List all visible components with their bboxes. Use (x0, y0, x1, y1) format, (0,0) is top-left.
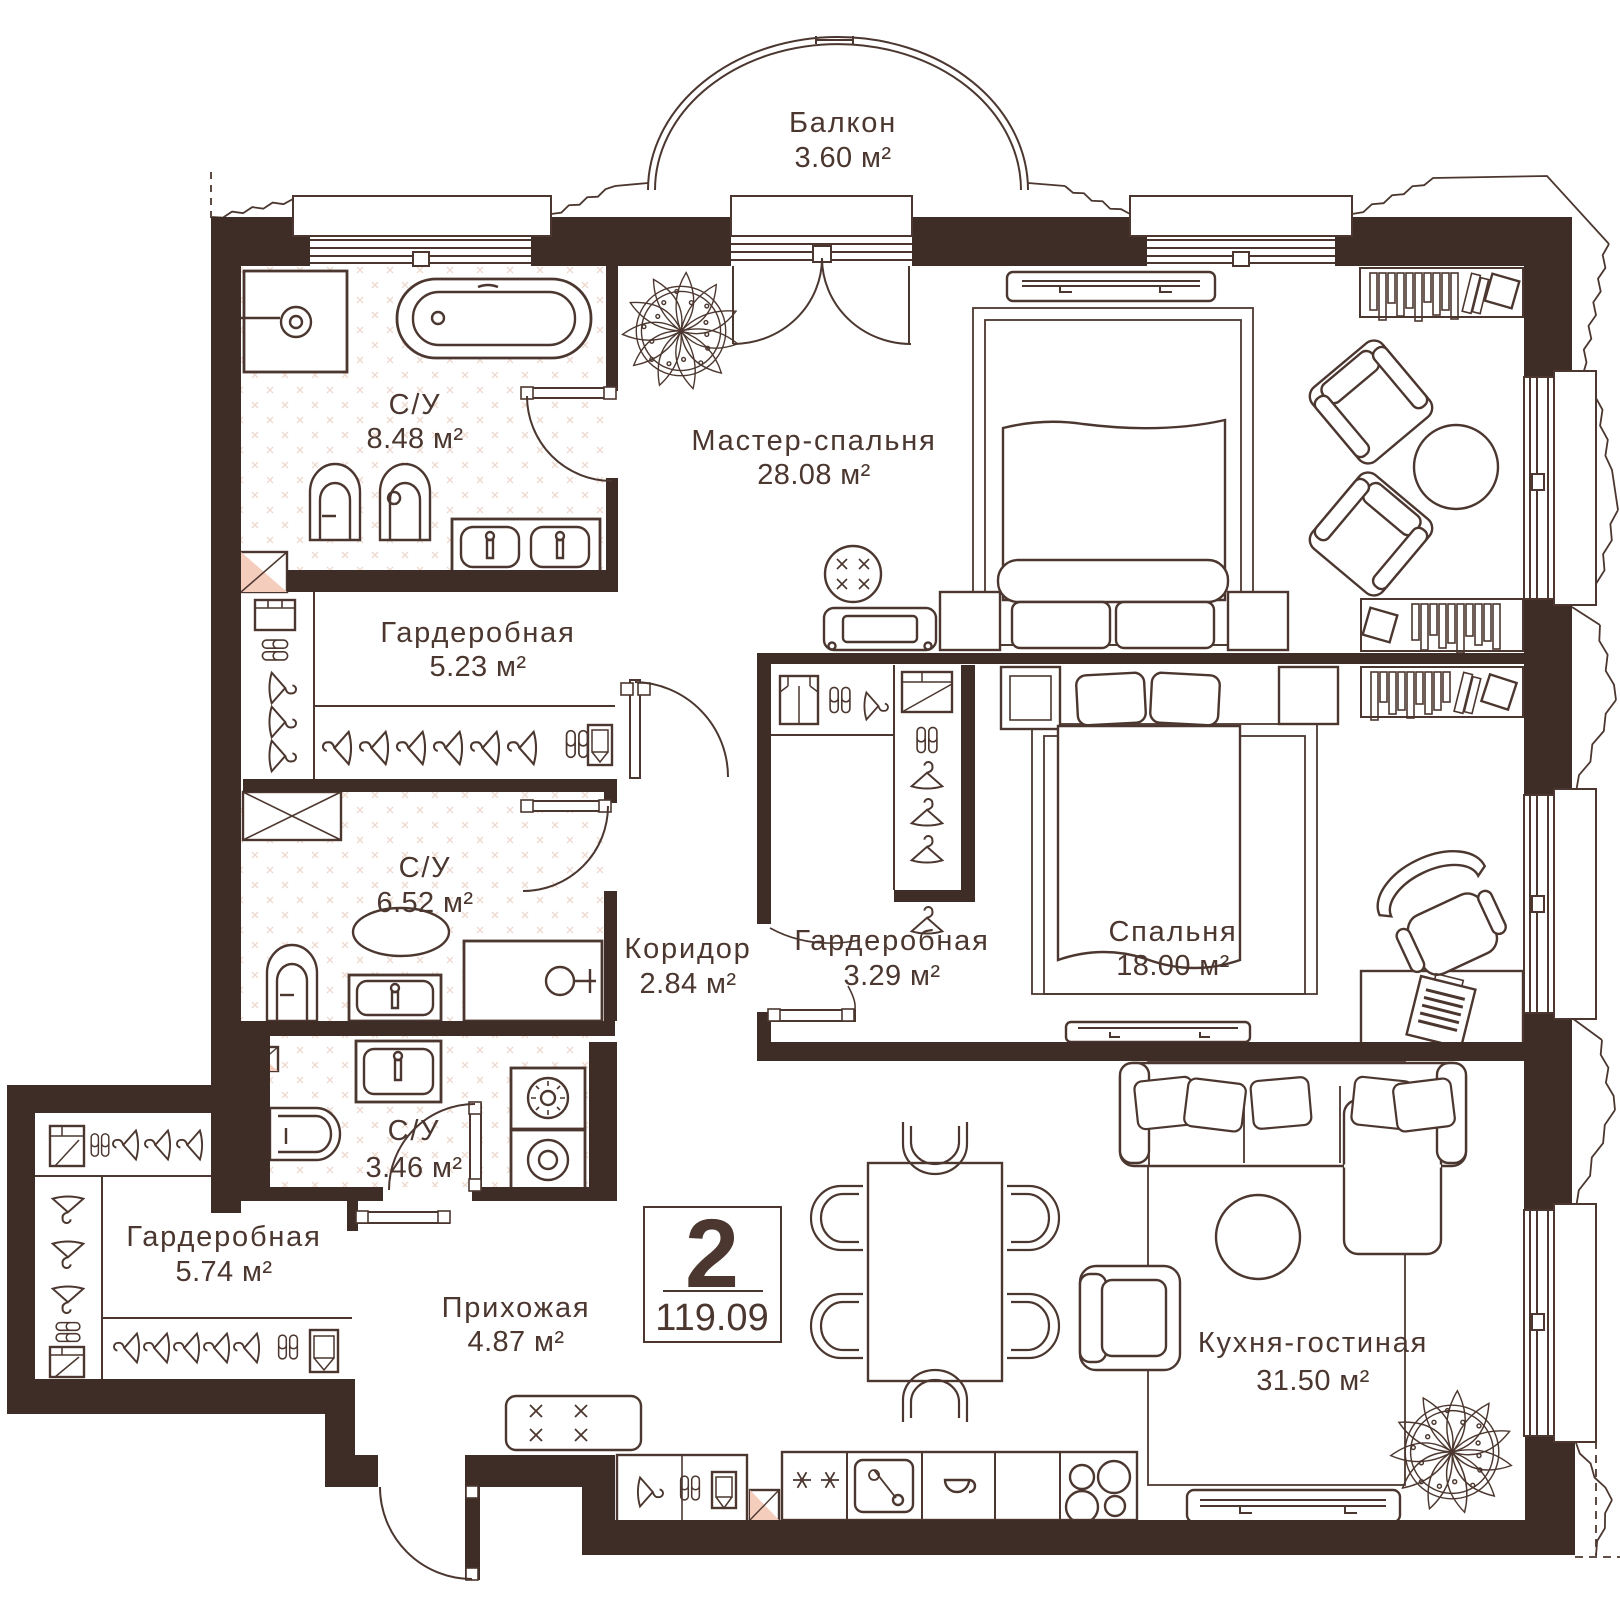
svg-text:С/У: С/У (389, 389, 442, 421)
svg-text:3.60 м²: 3.60 м² (795, 142, 892, 174)
svg-text:Мастер-спальня: Мастер-спальня (691, 425, 936, 457)
svg-text:Прихожая: Прихожая (442, 1292, 591, 1324)
svg-text:Гардеробная: Гардеробная (380, 617, 575, 649)
svg-text:5.74 м²: 5.74 м² (176, 1256, 273, 1288)
svg-text:18.00 м²: 18.00 м² (1116, 950, 1229, 982)
svg-text:2.84 м²: 2.84 м² (640, 968, 737, 1000)
svg-text:28.08 м²: 28.08 м² (757, 459, 870, 491)
svg-text:3.46 м²: 3.46 м² (366, 1152, 463, 1184)
svg-text:119.09: 119.09 (655, 1297, 768, 1339)
svg-text:С/У: С/У (388, 1115, 441, 1147)
svg-text:Балкон: Балкон (789, 107, 897, 139)
svg-text:Кухня-гостиная: Кухня-гостиная (1198, 1327, 1428, 1359)
svg-text:Гардеробная: Гардеробная (126, 1221, 321, 1253)
svg-text:Коридор: Коридор (624, 933, 751, 965)
svg-text:8.48 м²: 8.48 м² (367, 423, 464, 455)
svg-text:31.50 м²: 31.50 м² (1256, 1365, 1369, 1397)
svg-text:6.52 м²: 6.52 м² (377, 887, 474, 919)
svg-text:3.29 м²: 3.29 м² (844, 960, 941, 992)
svg-text:Гардеробная: Гардеробная (794, 925, 989, 957)
svg-text:С/У: С/У (399, 852, 452, 884)
svg-text:5.23 м²: 5.23 м² (430, 651, 527, 683)
svg-text:4.87 м²: 4.87 м² (468, 1326, 565, 1358)
svg-text:Спальня: Спальня (1108, 916, 1237, 948)
